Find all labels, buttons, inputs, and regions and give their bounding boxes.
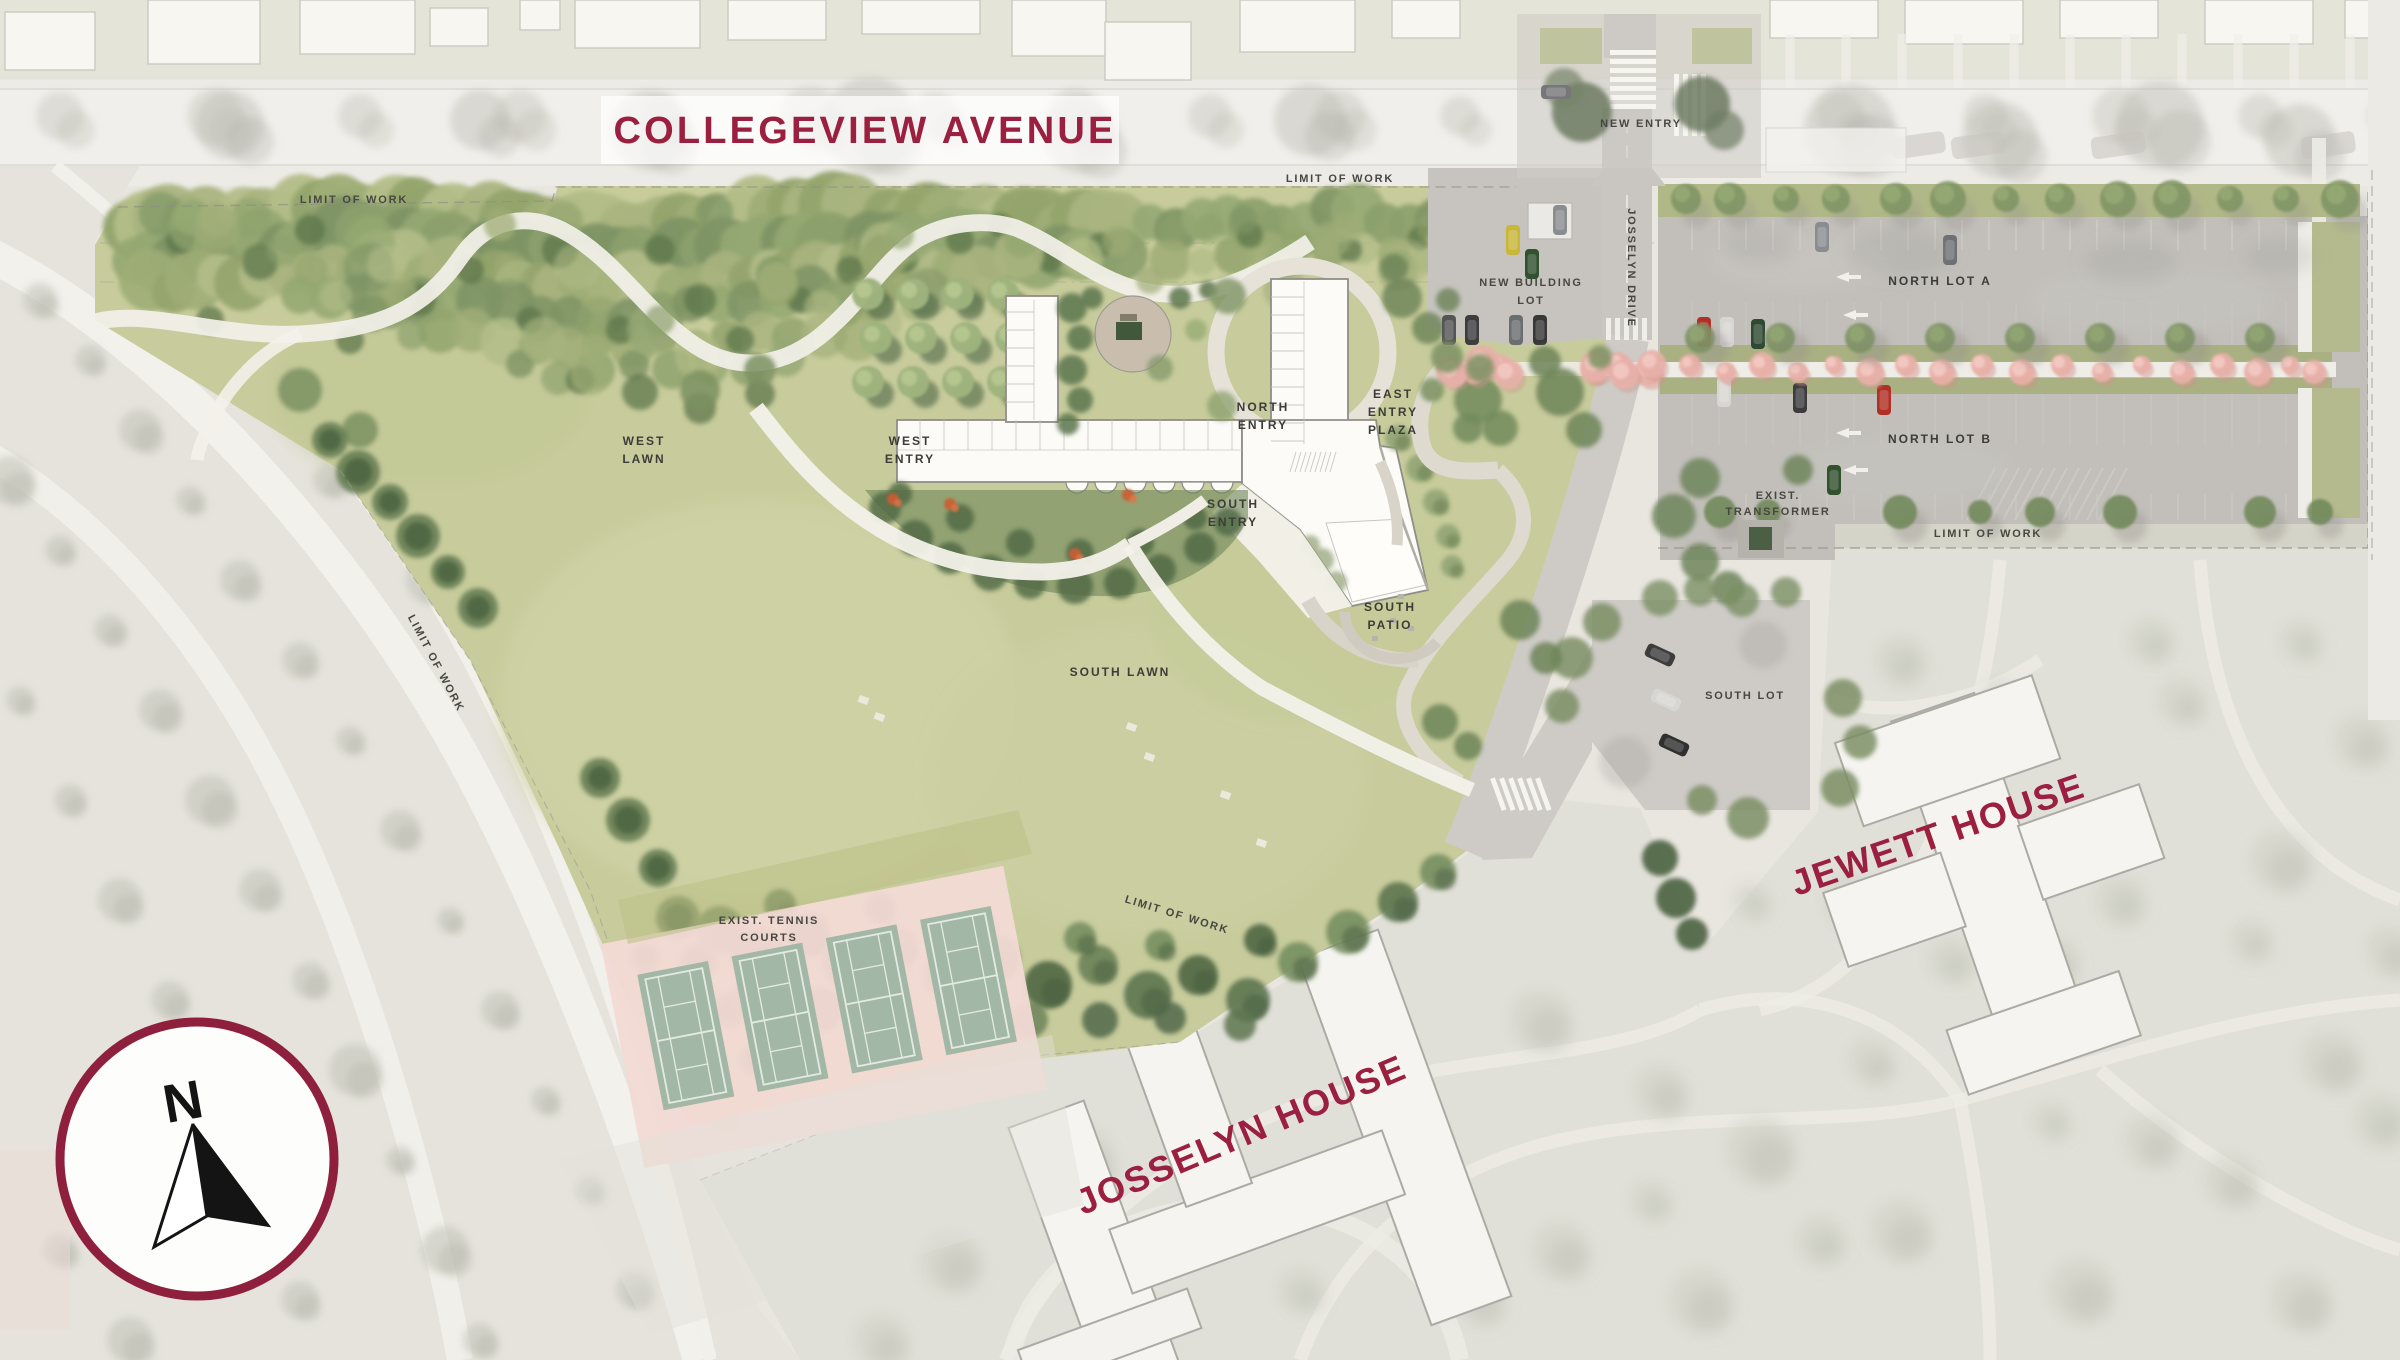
svg-text:SOUTH LOT: SOUTH LOT — [1705, 690, 1785, 702]
svg-text:LIMIT OF WORK: LIMIT OF WORK — [1286, 173, 1394, 185]
svg-text:PATIO: PATIO — [1368, 618, 1413, 632]
svg-text:NORTH LOT B: NORTH LOT B — [1888, 432, 1992, 446]
svg-text:EXIST. TENNIS: EXIST. TENNIS — [719, 915, 819, 927]
svg-text:EXIST.: EXIST. — [1756, 490, 1800, 502]
svg-text:ENTRY: ENTRY — [885, 452, 935, 466]
svg-text:NORTH LOT A: NORTH LOT A — [1888, 274, 1992, 288]
svg-text:ENTRY: ENTRY — [1208, 515, 1258, 529]
svg-text:PLAZA: PLAZA — [1368, 423, 1418, 437]
svg-text:SOUTH: SOUTH — [1207, 497, 1259, 511]
svg-text:LIMIT OF WORK: LIMIT OF WORK — [1934, 528, 2042, 540]
svg-text:ENTRY: ENTRY — [1238, 418, 1288, 432]
svg-text:LAWN: LAWN — [622, 452, 665, 466]
svg-text:NEW BUILDING: NEW BUILDING — [1479, 277, 1582, 289]
svg-text:TRANSFORMER: TRANSFORMER — [1725, 506, 1830, 518]
svg-text:COLLEGEVIEW AVENUE: COLLEGEVIEW AVENUE — [613, 110, 1116, 152]
svg-text:NEW ENTRY: NEW ENTRY — [1600, 118, 1682, 130]
svg-text:SOUTH LAWN: SOUTH LAWN — [1070, 665, 1171, 679]
svg-text:JOSSELYN DRIVE: JOSSELYN DRIVE — [1625, 208, 1637, 328]
svg-text:WEST: WEST — [889, 434, 932, 448]
svg-text:EAST: EAST — [1373, 387, 1413, 401]
svg-text:NORTH: NORTH — [1237, 400, 1290, 414]
svg-text:ENTRY: ENTRY — [1368, 405, 1418, 419]
svg-text:LIMIT OF WORK: LIMIT OF WORK — [300, 194, 408, 206]
svg-text:COURTS: COURTS — [740, 932, 797, 944]
svg-text:SOUTH: SOUTH — [1364, 600, 1416, 614]
svg-text:LOT: LOT — [1517, 295, 1544, 307]
svg-text:WEST: WEST — [623, 434, 666, 448]
